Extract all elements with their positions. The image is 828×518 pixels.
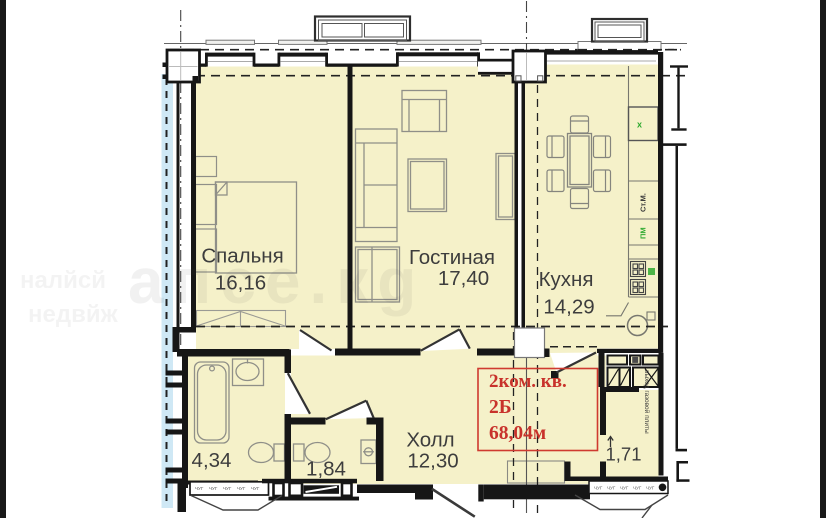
svg-text:ЧУГ: ЧУГ bbox=[209, 486, 218, 491]
svg-text:4,34: 4,34 bbox=[192, 449, 232, 472]
svg-text:17,40: 17,40 bbox=[438, 267, 489, 290]
svg-text:2Б: 2Б bbox=[489, 397, 512, 418]
svg-text:х: х bbox=[637, 120, 642, 130]
svg-text:Кухня: Кухня bbox=[539, 268, 594, 291]
svg-text:1,84: 1,84 bbox=[306, 458, 346, 481]
svg-text:недвйж: недвйж bbox=[28, 301, 119, 328]
svg-text:14,29: 14,29 bbox=[543, 296, 594, 319]
svg-text:налйсй: налйсй bbox=[20, 267, 106, 294]
svg-text:12,30: 12,30 bbox=[407, 450, 458, 473]
svg-text:68,04м: 68,04м bbox=[489, 423, 546, 444]
svg-text:ПМ: ПМ bbox=[639, 227, 648, 239]
svg-text:ЧУГ: ЧУГ bbox=[594, 486, 603, 491]
svg-text:ЧУГ: ЧУГ bbox=[251, 486, 260, 491]
svg-text:ЧУГ: ЧУГ bbox=[633, 486, 642, 491]
svg-text:ЧУГ: ЧУГ bbox=[195, 486, 204, 491]
svg-text:апсе.кg: апсе.кg bbox=[128, 245, 425, 317]
svg-text:ЧУГ: ЧУГ bbox=[237, 486, 246, 491]
svg-text:Ст.М.: Ст.М. bbox=[639, 193, 648, 212]
svg-text:Холл: Холл bbox=[406, 429, 454, 452]
svg-text:ЧУГ: ЧУГ bbox=[223, 486, 232, 491]
svg-text:ЧУГ: ЧУГ bbox=[607, 486, 616, 491]
svg-text:ЧУГ: ЧУГ bbox=[620, 486, 629, 491]
svg-text:1,71: 1,71 bbox=[605, 444, 641, 465]
svg-text:2ком. кв.: 2ком. кв. bbox=[489, 371, 567, 392]
svg-text:выход газовой плиты: выход газовой плиты bbox=[643, 370, 651, 434]
svg-text:ЧУГ: ЧУГ bbox=[646, 486, 655, 491]
